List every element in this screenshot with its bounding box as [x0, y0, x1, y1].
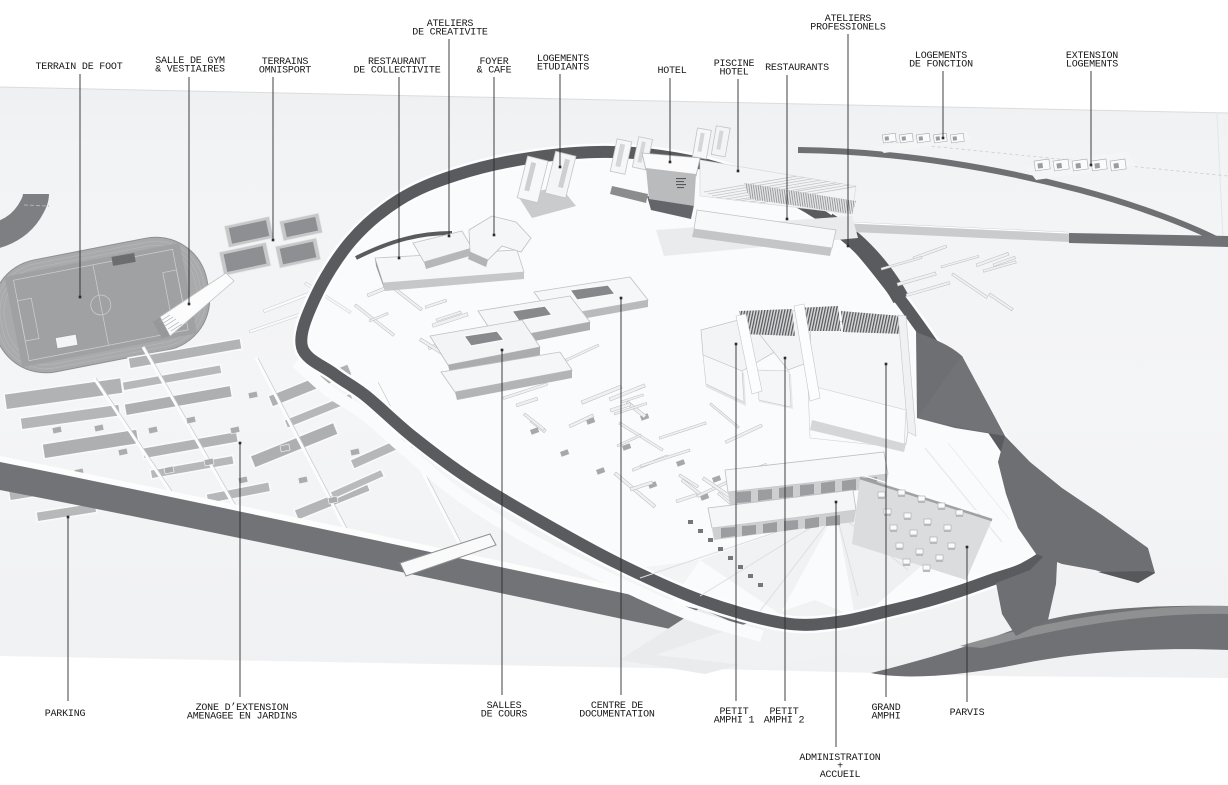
svg-text:PARVIS: PARVIS [950, 708, 985, 719]
svg-text:& CAFE: & CAFE [477, 65, 512, 76]
svg-text:AMENAGEE EN JARDINS: AMENAGEE EN JARDINS [187, 711, 297, 722]
svg-text:DOCUMENTATION: DOCUMENTATION [579, 709, 655, 720]
svg-text:DE COURS: DE COURS [481, 709, 528, 720]
svg-text:ETUDIANTS: ETUDIANTS [537, 62, 589, 73]
svg-text:TERRAIN DE FOOT: TERRAIN DE FOOT [35, 62, 122, 73]
svg-text:DE FONCTION: DE FONCTION [909, 59, 973, 70]
svg-text:PROFESSIONELS: PROFESSIONELS [810, 22, 886, 33]
svg-text:HOTEL: HOTEL [719, 67, 748, 78]
svg-text:AMPHI 1: AMPHI 1 [714, 715, 755, 726]
svg-text:AMPHI 2: AMPHI 2 [764, 715, 805, 726]
svg-text:HOTEL: HOTEL [657, 66, 686, 77]
svg-text:& VESTIAIRES: & VESTIAIRES [155, 64, 225, 75]
svg-text:DE CREATIVITE: DE CREATIVITE [412, 27, 488, 38]
svg-text:LOGEMENTS: LOGEMENTS [1066, 59, 1118, 70]
svg-text:OMNISPORT: OMNISPORT [259, 65, 311, 76]
svg-text:AMPHI: AMPHI [871, 711, 900, 722]
svg-text:ACCUEIL: ACCUEIL [820, 770, 861, 781]
svg-text:DE COLLECTIVITE: DE COLLECTIVITE [353, 65, 440, 76]
svg-text:PARKING: PARKING [45, 709, 86, 720]
svg-text:RESTAURANTS: RESTAURANTS [765, 63, 829, 74]
